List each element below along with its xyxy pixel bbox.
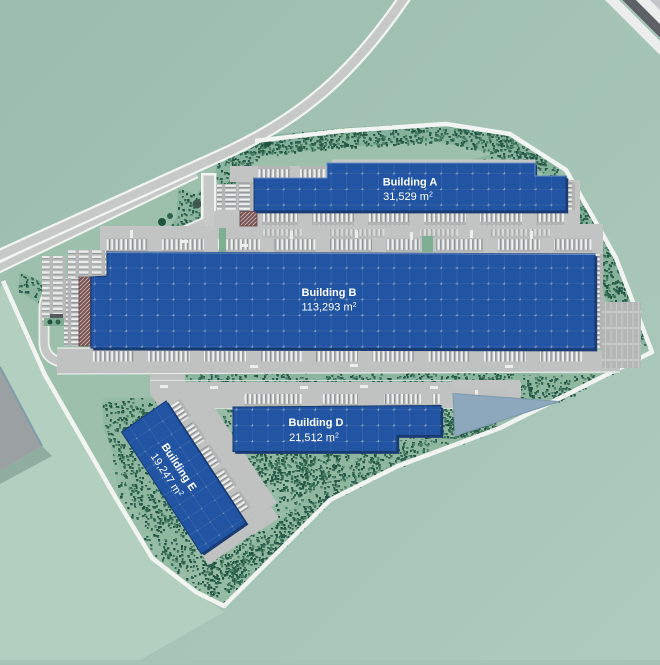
svg-text:113,293 m2: 113,293 m2 [301,302,356,314]
svg-text:31,529 m2: 31,529 m2 [383,191,433,203]
svg-text:Building A: Building A [383,177,438,189]
svg-text:Building B: Building B [302,287,357,299]
svg-text:21,512 m2: 21,512 m2 [289,432,339,444]
svg-text:Building D: Building D [289,417,344,429]
